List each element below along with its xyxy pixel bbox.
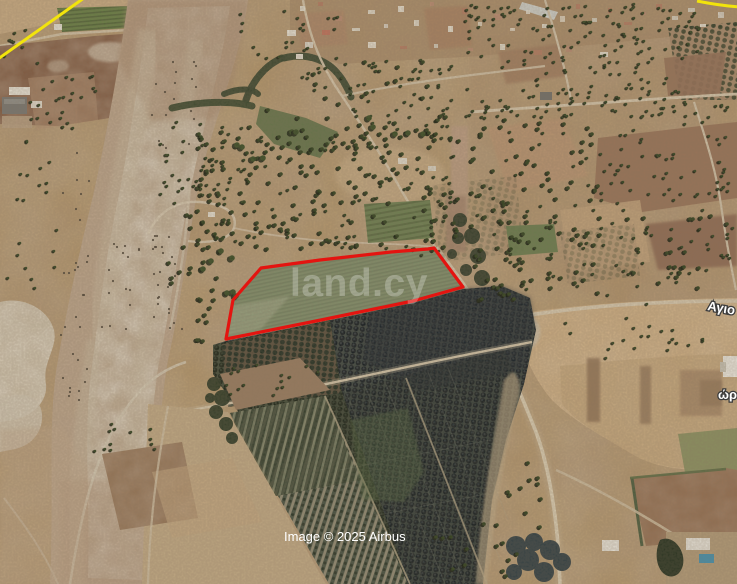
svg-text:ώρ: ώρ <box>718 387 737 402</box>
svg-text:land.cy: land.cy <box>290 262 428 305</box>
svg-text:Image © 2025 Airbus: Image © 2025 Airbus <box>284 529 406 544</box>
